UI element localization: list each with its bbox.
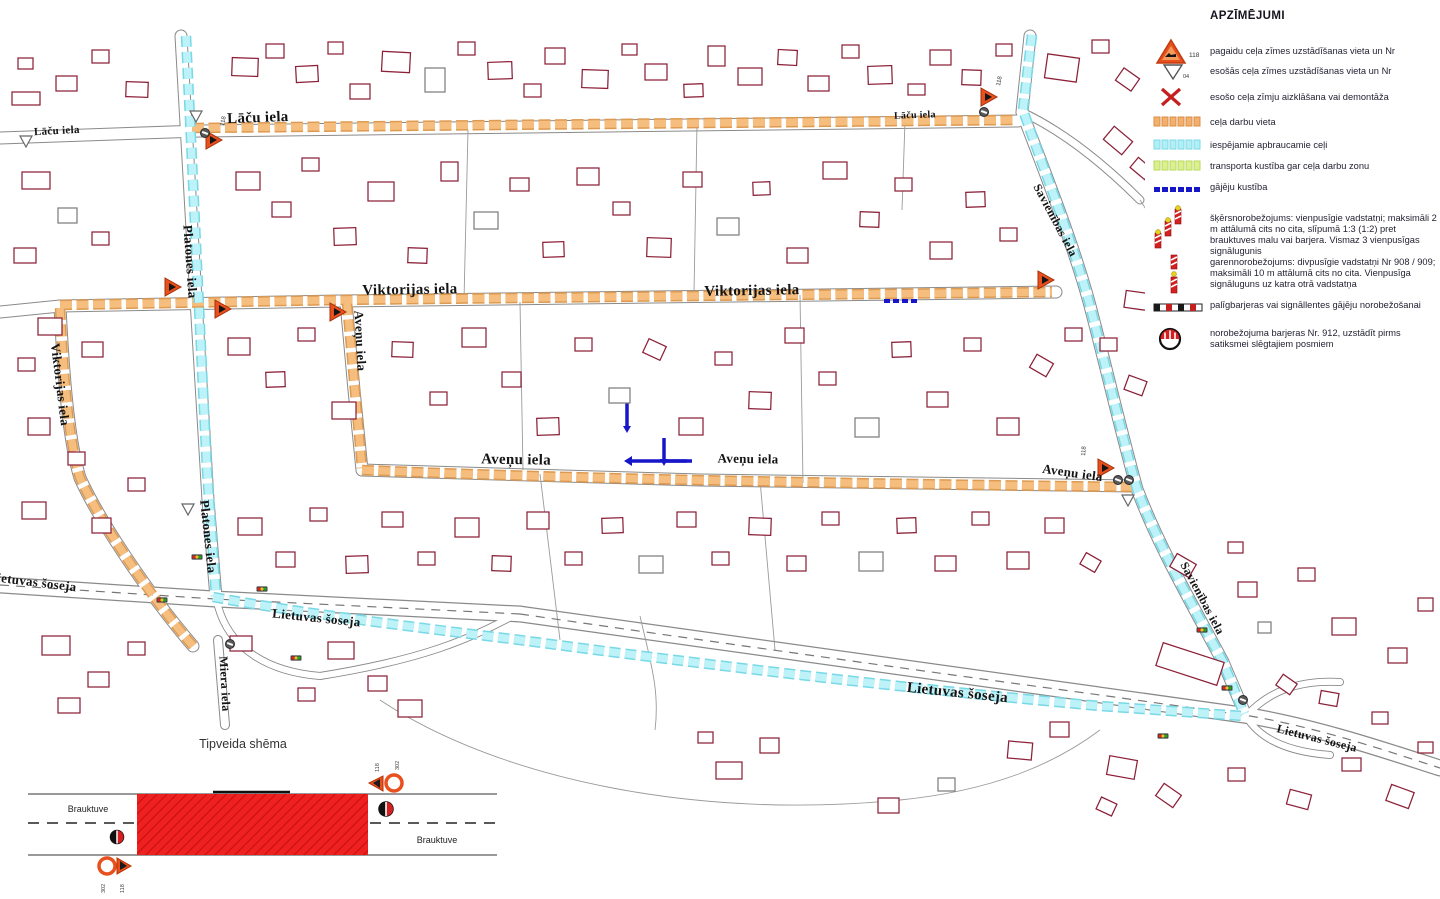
building — [927, 392, 948, 407]
building — [266, 44, 284, 58]
building — [18, 58, 33, 69]
building — [92, 50, 109, 63]
sign-number: 302 — [101, 884, 107, 893]
prohibition-circle-icon — [386, 775, 402, 791]
building — [716, 762, 742, 779]
building — [392, 342, 414, 358]
building — [92, 518, 111, 533]
building — [474, 212, 498, 229]
building — [302, 158, 319, 171]
building — [328, 42, 343, 54]
building — [28, 418, 50, 435]
building — [58, 698, 80, 713]
scheme-title: Tipveida shēma — [199, 737, 287, 751]
legend-item-label: garennorobežojums: divpusīgie vadstatņi … — [1210, 257, 1438, 290]
building — [22, 172, 50, 189]
building — [22, 502, 46, 519]
legend-item-label: norobežojuma barjeras Nr. 912, uzstādīt … — [1210, 328, 1438, 350]
building — [38, 318, 62, 335]
building — [1124, 375, 1147, 396]
street-label-viktorijas-iela: Viktorijas iela — [704, 282, 800, 300]
building — [1092, 40, 1109, 53]
traffic-light-icon — [1197, 627, 1208, 632]
building — [543, 242, 565, 258]
building — [1096, 797, 1117, 816]
building — [622, 44, 637, 55]
building — [760, 738, 779, 753]
building — [753, 182, 770, 196]
building — [492, 556, 512, 572]
building — [639, 556, 663, 573]
barrier-912-icon — [1114, 476, 1123, 485]
roadworks-dash-icon — [1153, 115, 1207, 133]
existing-sign-triangle-icon — [182, 504, 194, 515]
sign-number: 118 — [375, 763, 381, 772]
traffic-light-icon — [1158, 733, 1169, 738]
building — [1007, 552, 1029, 569]
barrier-912-icon — [980, 108, 989, 117]
building — [717, 218, 739, 235]
barrier-912-icon — [1157, 326, 1183, 357]
building — [92, 232, 109, 245]
building — [1298, 568, 1315, 581]
building — [609, 388, 630, 403]
sign-removal-x-icon — [1159, 86, 1183, 113]
building — [82, 342, 103, 357]
building — [645, 64, 667, 80]
building — [128, 642, 145, 655]
building — [430, 392, 447, 405]
building — [895, 178, 912, 191]
building — [398, 700, 422, 717]
sign-number: 302 — [395, 761, 401, 770]
building — [1418, 598, 1433, 611]
building — [1045, 518, 1064, 533]
building — [346, 556, 369, 574]
existing-sign-triangle-icon — [1161, 62, 1185, 87]
detour-dash-icon — [1153, 138, 1207, 156]
barrier-912-icon — [201, 129, 210, 138]
lane-label-left: Brauktuve — [68, 804, 109, 814]
building — [228, 338, 250, 355]
building — [441, 162, 458, 181]
building — [381, 51, 410, 72]
street-label-ave-u-iela: Aveņu iela — [717, 450, 778, 467]
building — [930, 50, 951, 65]
building — [296, 65, 319, 82]
building — [462, 328, 486, 347]
legend-sign-number: 04 — [1183, 74, 1189, 80]
street-label-l-u-iela: Lāču iela — [34, 124, 81, 138]
building — [749, 392, 772, 410]
building — [997, 418, 1019, 435]
building — [350, 84, 370, 99]
building — [602, 518, 624, 534]
building — [455, 518, 479, 537]
building — [677, 512, 696, 527]
building — [382, 512, 403, 527]
traffic-management-scheme: 118118118 Lāču ielaLāču ielaLāču ielaVik… — [0, 0, 1440, 899]
building — [12, 92, 40, 105]
building — [488, 62, 513, 80]
building — [842, 45, 859, 58]
street-label-l-u-iela: Lāču iela — [227, 109, 289, 127]
building — [962, 70, 982, 86]
lane-label-right: Brauktuve — [417, 835, 458, 845]
legend-title: APZĪMĒJUMI — [1210, 10, 1285, 22]
building — [643, 339, 667, 361]
building — [698, 732, 713, 743]
building — [679, 418, 703, 435]
building — [68, 452, 85, 465]
building — [58, 208, 77, 223]
building — [126, 82, 149, 98]
scheme-signs-right: 118 302 — [369, 761, 402, 816]
building — [56, 76, 77, 91]
building — [738, 68, 762, 85]
legend-item-label: ceļa darbu vieta — [1210, 117, 1438, 128]
transverse-posts-icon — [1153, 205, 1189, 260]
building — [1319, 691, 1339, 707]
building — [1044, 54, 1079, 82]
building — [565, 552, 582, 565]
building — [510, 178, 529, 191]
building — [1065, 328, 1082, 341]
traffic-light-icon — [192, 554, 203, 559]
building — [537, 418, 560, 436]
building — [859, 552, 883, 571]
building — [298, 328, 315, 341]
building — [88, 672, 109, 687]
building — [238, 518, 262, 535]
street-label-platones-iela: Platones iela — [197, 499, 220, 574]
barrier-912-icon — [226, 640, 235, 649]
building — [749, 518, 772, 536]
building — [787, 248, 808, 263]
pedestrian-routes — [623, 301, 918, 466]
building — [1342, 758, 1361, 771]
sign-number: 118 — [120, 884, 126, 893]
existing-sign-triangle-icon — [1122, 495, 1134, 506]
building — [1332, 618, 1356, 635]
building — [524, 84, 541, 97]
scheme-signs-left: 302 118 — [99, 831, 131, 894]
map-sign-number: 118 — [1081, 445, 1088, 456]
building — [683, 172, 702, 187]
building — [1372, 712, 1388, 724]
building — [298, 688, 315, 701]
map-sign-number: 118 — [996, 75, 1004, 86]
building — [808, 76, 829, 91]
barrier-tape-icon — [1153, 301, 1205, 319]
building — [368, 676, 387, 691]
legend-item-label: pagaidu ceļa zīmes uzstādīšanas vieta un… — [1210, 46, 1438, 57]
building — [1115, 68, 1139, 91]
building — [310, 508, 327, 521]
traffic-light-icon — [1222, 685, 1233, 690]
building — [908, 84, 925, 95]
building — [1100, 338, 1117, 351]
building — [897, 518, 917, 534]
building — [684, 84, 703, 98]
building — [972, 512, 989, 525]
building — [334, 228, 357, 246]
building — [502, 372, 521, 387]
building — [408, 248, 428, 264]
building — [1107, 756, 1138, 780]
legend-item-label: šķērsnorobežojums: vienpusīgie vadstatņi… — [1210, 213, 1438, 258]
traffic-light-icon — [157, 597, 168, 602]
pedestrian-dash-icon — [1153, 181, 1207, 199]
building — [272, 202, 291, 217]
building — [1258, 622, 1271, 633]
building — [787, 556, 806, 571]
building — [712, 552, 729, 565]
building — [1228, 768, 1245, 781]
barrier-912-icon — [379, 802, 393, 816]
legend-item-label: transporta kustība gar ceļa darbu zonu — [1210, 161, 1438, 172]
legend-item-label: esošās ceļa zīmes uzstādīšanas vieta un … — [1210, 66, 1438, 77]
temporary-sign-triangle-icon — [981, 88, 997, 106]
building — [823, 162, 847, 179]
building — [822, 512, 839, 525]
building — [647, 238, 672, 258]
street-label-l-u-iela: Lāču iela — [894, 109, 936, 121]
legend-item-label: gājēju kustība — [1210, 182, 1438, 193]
building — [1007, 741, 1032, 760]
legend-panel: APZĪMĒJUMI 118 pagaidu ceļa zīmes uzstād… — [1145, 0, 1440, 372]
typical-scheme-panel: Tipveida shēma Brauktuve Brauktuve 118 3… — [28, 737, 497, 893]
building — [819, 372, 836, 385]
street-label-viktorijas-iela: Viktorijas iela — [362, 281, 458, 299]
building — [1228, 542, 1243, 553]
building — [966, 192, 986, 208]
building — [938, 778, 955, 791]
building — [892, 342, 912, 358]
building — [1030, 354, 1054, 376]
building — [128, 478, 145, 491]
temporary-sign-triangle-icon — [165, 278, 181, 296]
building — [42, 636, 70, 655]
building — [545, 48, 565, 64]
building — [582, 70, 609, 89]
building — [1103, 126, 1132, 154]
barrier-912-icon — [111, 831, 124, 844]
traffic-zone-dash-icon — [1153, 159, 1207, 177]
building — [577, 168, 599, 185]
building — [1386, 784, 1414, 808]
building — [418, 552, 435, 565]
building — [930, 242, 952, 259]
traffic-light-icon — [291, 655, 302, 660]
building — [1238, 582, 1257, 597]
building — [715, 352, 732, 365]
building — [1156, 783, 1182, 807]
prohibition-circle-icon — [99, 858, 115, 874]
building — [575, 338, 592, 351]
legend-item-label: esošo ceļa zīmju aizklāšana vai demontāž… — [1210, 92, 1438, 103]
longitudinal-posts-icon — [1167, 253, 1181, 302]
building — [332, 402, 356, 419]
building — [266, 372, 286, 388]
building — [996, 44, 1012, 56]
building — [613, 202, 630, 215]
building — [935, 556, 956, 571]
building — [276, 552, 295, 567]
building — [368, 182, 394, 201]
street-label-miera-iela: Miera iela — [217, 656, 234, 712]
building — [785, 328, 804, 343]
building — [1000, 228, 1017, 241]
legend-sign-number: 118 — [1189, 52, 1199, 59]
building — [425, 68, 445, 92]
building — [1286, 789, 1311, 809]
building — [1388, 648, 1407, 663]
building — [868, 66, 893, 85]
traffic-light-icon — [257, 586, 268, 591]
building — [1050, 722, 1069, 737]
building — [458, 42, 475, 55]
street-label-ave-u-iela: Aveņu iela — [481, 451, 551, 468]
barrier-912-icon — [1125, 476, 1134, 485]
building — [778, 50, 798, 66]
building — [855, 418, 879, 437]
building — [1418, 742, 1433, 753]
legend-item-label: iespējamie apbraucamie ceļi — [1210, 140, 1438, 151]
building — [527, 512, 549, 529]
building — [878, 798, 899, 813]
building — [1080, 553, 1101, 573]
building — [708, 46, 725, 66]
building — [236, 172, 260, 190]
closed-workzone-rect — [137, 794, 368, 855]
building — [328, 642, 354, 659]
legend-item-label: palīgbarjeras vai signāllentes gājēju no… — [1210, 300, 1438, 311]
barrier-912-icon — [1239, 696, 1248, 705]
building — [18, 358, 35, 371]
building — [14, 248, 36, 263]
building — [964, 338, 981, 351]
building — [232, 58, 259, 77]
building — [860, 212, 880, 228]
